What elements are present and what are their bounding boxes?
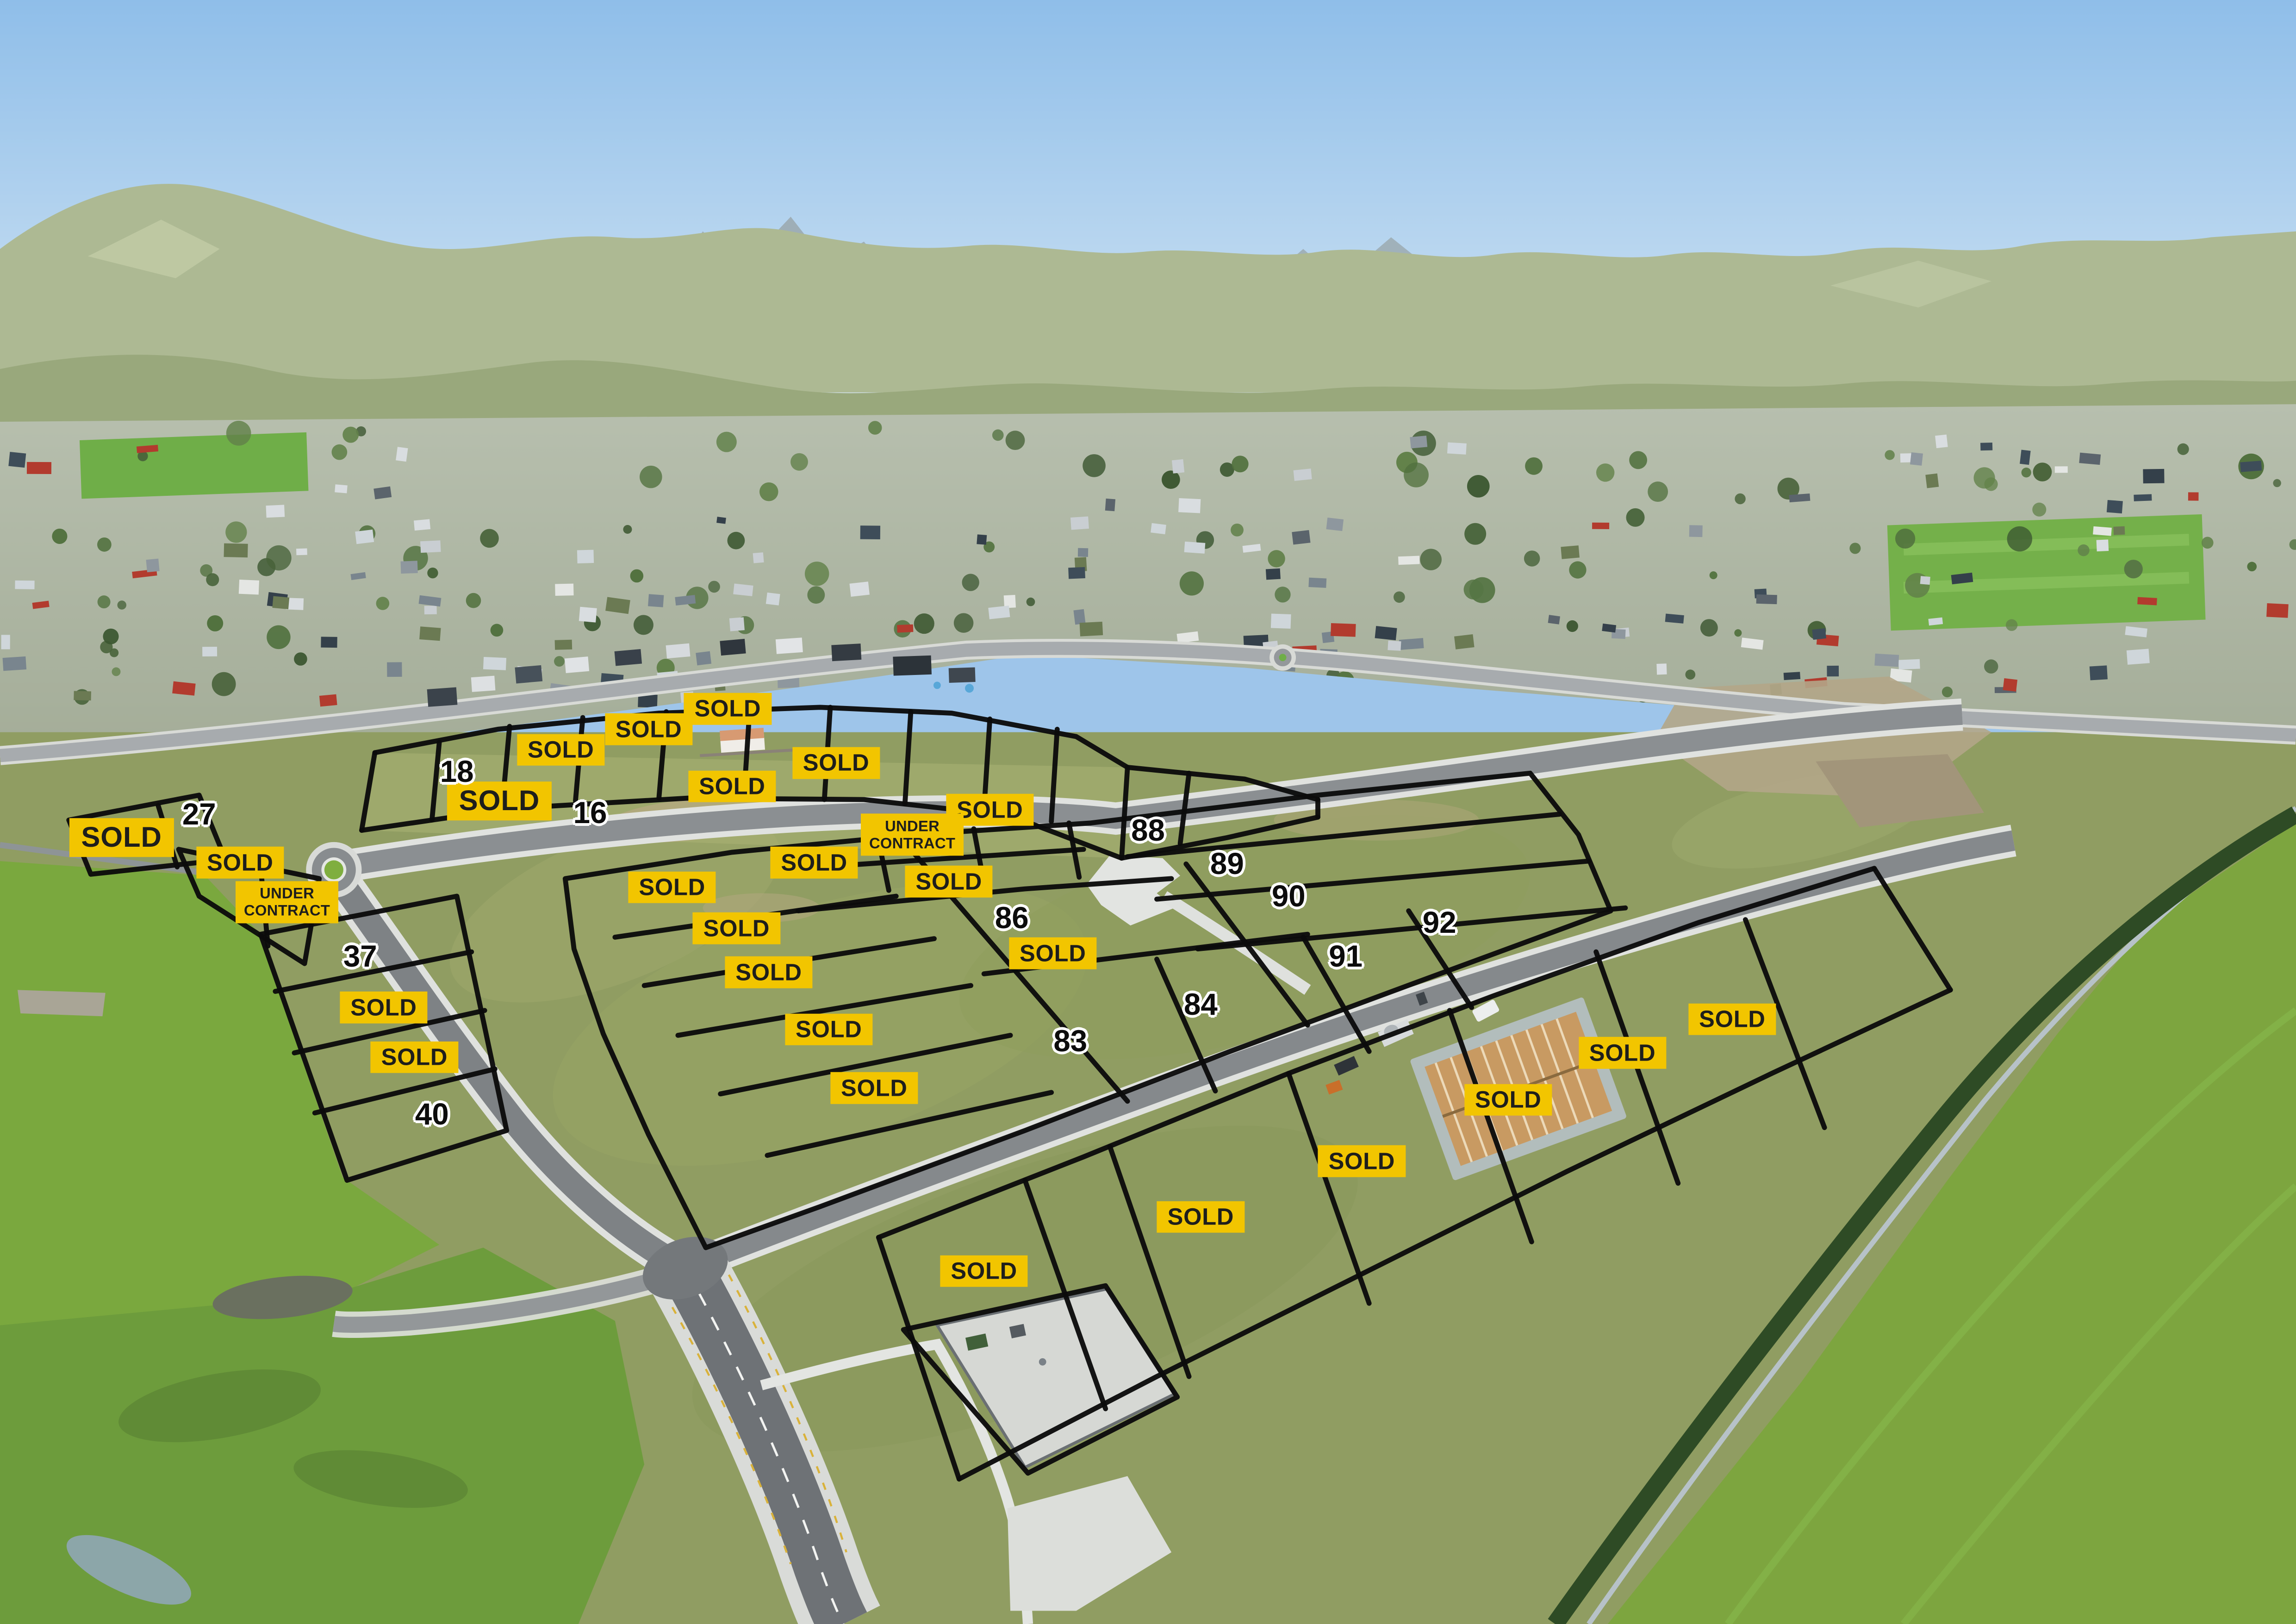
lot-number-27: 27 <box>182 798 216 831</box>
lot-badge-sold-3: SOLD <box>792 747 880 779</box>
lot-badge-sold-14: SOLD <box>771 847 858 879</box>
lot-badge-sold-9: SOLD <box>69 818 174 857</box>
lot-badge-sold-36: SOLD <box>1464 1084 1552 1116</box>
lot-number-89: 89 <box>1210 847 1244 881</box>
lot-badge-sold-37: SOLD <box>1318 1145 1406 1177</box>
lot-badge-sold-35: SOLD <box>1579 1037 1666 1069</box>
aerial-subdivision-photo: SOLDSOLDSOLDSOLDSOLDSOLD181627SOLDSOLDUN… <box>0 0 2296 1624</box>
lot-badge-sold-15: SOLD <box>905 866 993 898</box>
lot-badge-sold-10: SOLD <box>196 847 284 879</box>
lot-number-83: 83 <box>1053 1024 1087 1058</box>
lot-badge-under_contract-13: UNDER CONTRACT <box>861 813 964 856</box>
lot-number-86: 86 <box>995 901 1029 935</box>
lot-badge-sold-21: SOLD <box>785 1013 872 1045</box>
lot-badge-sold-39: SOLD <box>940 1255 1028 1287</box>
lot-number-92: 92 <box>1423 906 1456 939</box>
lot-number-18: 18 <box>440 755 474 788</box>
lot-number-40: 40 <box>415 1098 449 1131</box>
lot-badge-sold-17: SOLD <box>693 912 780 944</box>
lot-badge-sold-32: SOLD <box>371 1042 458 1074</box>
lot-badge-sold-31: SOLD <box>340 992 427 1024</box>
lots-overlay: SOLDSOLDSOLDSOLDSOLDSOLD181627SOLDSOLDUN… <box>0 0 2296 1624</box>
lot-number-37: 37 <box>343 940 377 973</box>
lot-number-84: 84 <box>1184 988 1218 1021</box>
lot-badge-sold-38: SOLD <box>1157 1201 1244 1233</box>
lot-number-91: 91 <box>1329 940 1363 973</box>
lot-number-90: 90 <box>1272 880 1306 913</box>
lot-badge-sold-16: SOLD <box>628 872 716 904</box>
lot-badge-under_contract-11: UNDER CONTRACT <box>236 881 338 923</box>
lot-badge-sold-22: SOLD <box>830 1072 918 1104</box>
lot-badge-sold-34: SOLD <box>1688 1003 1776 1035</box>
lot-badge-sold-19: SOLD <box>1009 937 1096 969</box>
lot-badge-sold-1: SOLD <box>605 713 692 745</box>
lot-number-16: 16 <box>573 796 607 830</box>
lot-badge-sold-2: SOLD <box>517 734 604 766</box>
lot-badge-sold-0: SOLD <box>684 693 772 725</box>
lot-badge-sold-5: SOLD <box>688 770 776 802</box>
lot-badge-sold-20: SOLD <box>725 956 812 988</box>
lot-number-88: 88 <box>1131 814 1165 847</box>
